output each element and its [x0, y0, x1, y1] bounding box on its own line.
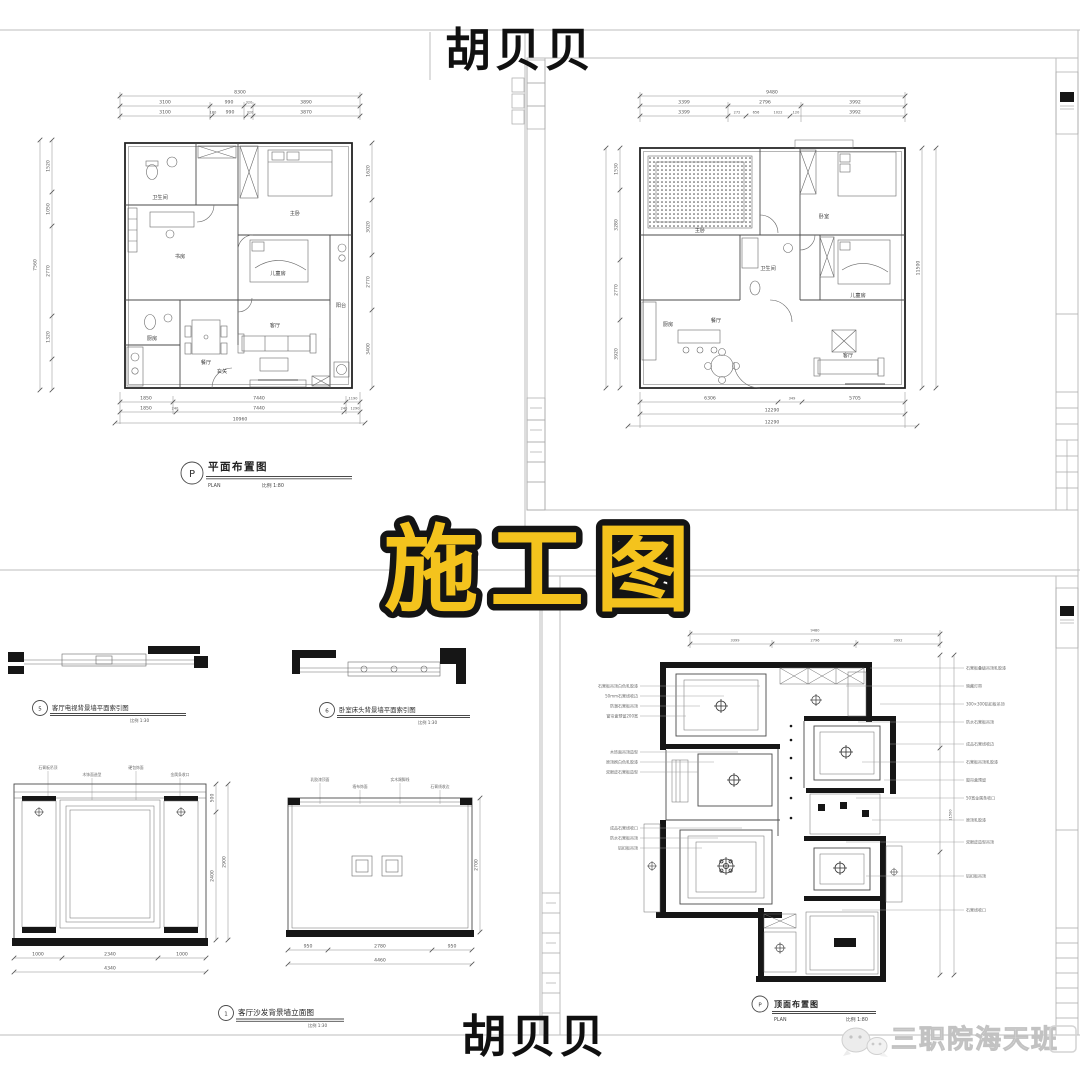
dim-label: 2400 [210, 870, 216, 882]
callout: 石膏板吊顶 [39, 765, 58, 770]
callout: 石膏板吊顶白色乳胶漆 [598, 683, 638, 689]
dim-label: 320 [247, 111, 254, 115]
index-caption-1: 5 客厅电视背景墙平面索引图 比例 1:30 [33, 701, 187, 725]
callout: 防水石膏板吊顶 [610, 835, 638, 841]
dim-label: 9480 [766, 90, 778, 96]
callout: 防潮石膏板吊顶 [610, 703, 638, 709]
dim-label: 1850 [140, 396, 152, 402]
index-scale: 比例 1:30 [418, 719, 437, 726]
callout: 双眼皮造型吊顶 [966, 839, 994, 845]
dim-label: 2700 [474, 859, 480, 871]
dim-label: 120 [793, 111, 800, 115]
author-name-top: 胡贝贝 [0, 26, 1060, 74]
dim-label: 1190 [349, 397, 358, 401]
dim-label: 4460 [374, 958, 386, 964]
dim-label: 1050 [46, 203, 52, 215]
plan1-title-block: P 平面布置图 PLAN 比例 1:80 [181, 460, 352, 489]
dim-label: 1850 [140, 406, 152, 412]
callout: 50mm石膏线收边 [605, 693, 638, 699]
room-label: 厨房 [147, 334, 157, 342]
dim-label: 656 [753, 111, 760, 115]
drawing-title: 平面布置图 [208, 460, 268, 473]
drawing-tag: P [758, 1003, 762, 1009]
callout: 50宽金属条收口 [966, 795, 995, 801]
ceiling-walls [656, 662, 896, 982]
index-title: 客厅电视背景墙平面索引图 [52, 703, 129, 712]
ceiling-chandelier-icon [717, 857, 735, 875]
ceiling-dims: 9480 3399 2796 3992 11500 [688, 629, 957, 978]
callout: 木饰面造型 [83, 772, 102, 777]
dim-label: 3399 [678, 100, 690, 106]
dim-label: 4340 [104, 966, 116, 972]
index-tag: 6 [325, 709, 329, 715]
ceiling-lamp-icon [727, 773, 741, 787]
right-elevation-callouts: 乳胶漆顶面 墙布饰面 实木踢脚线 石膏线收边 [311, 777, 450, 804]
callout: 墙布饰面 [352, 784, 367, 789]
left-elevation-callouts: 石膏板吊顶 木饰面造型 硬包饰面 金属条收口 [39, 765, 190, 800]
callout: 300×300铝扣板吊顶 [966, 701, 1005, 707]
dim-label: 3399 [678, 110, 690, 116]
drawing-tag: P [189, 469, 195, 480]
dim-label: 7440 [253, 406, 265, 412]
callout: 石膏线收口 [966, 907, 986, 913]
dim-label: 2796 [759, 100, 771, 106]
index-title: 卧室床头背景墙平面索引图 [339, 705, 416, 714]
main-title: 施工图 [323, 508, 763, 626]
ceiling-lamp-icon [839, 745, 853, 759]
index-diagram-tv-wall [8, 646, 208, 674]
dim-label: 180 [210, 111, 217, 115]
dim-label: 349 [789, 397, 796, 401]
room-label: 餐厅 [711, 316, 721, 324]
dim-label: 2780 [374, 944, 386, 950]
dim-label: 1290 [351, 407, 360, 411]
panel-plan-top-left: 卫生间 主卧 书房 儿童房 餐厅 厨房 客厅 阳台 玄关 8300 3100 9… [33, 90, 375, 490]
callout: 防水石膏板吊顶 [966, 719, 994, 725]
callout: 石膏板叠级吊顶乳胶漆 [966, 665, 1006, 671]
dim-label: 1000 [32, 952, 44, 958]
dim-label: 10960 [233, 417, 248, 423]
index-scale: 比例 1:30 [130, 717, 149, 724]
author-name-bottom: 胡贝贝 [0, 1013, 1075, 1060]
panel-plan-top-right: 主卧 卧室 儿童房 卫生间 厨房 餐厅 客厅 9480 3399 2796 39… [604, 90, 939, 429]
room-label: 厨房 [663, 320, 673, 328]
callout: 原顶刷白色乳胶漆 [606, 759, 638, 765]
dim-label: 240 [172, 407, 179, 411]
room-label: 玄关 [217, 367, 227, 375]
dim-label: 6306 [704, 396, 716, 402]
dim-label: 2340 [104, 952, 116, 958]
callout: 成品石膏线收边 [966, 741, 994, 747]
callout: 铝扣板吊顶 [966, 873, 986, 879]
dim-label: 950 [304, 944, 313, 950]
dim-label: 3100 [159, 110, 171, 116]
dim-label: 990 [226, 110, 235, 116]
callout: 窗帘盒预留 [966, 777, 986, 783]
construction-drawing-poster: 卫生间 主卧 书房 儿童房 餐厅 厨房 客厅 阳台 玄关 8300 3100 9… [0, 0, 1080, 1080]
ceiling-features [644, 668, 902, 974]
ceiling-lamp-icon [774, 942, 785, 953]
callout: 实木踢脚线 [391, 777, 410, 782]
panel-ceiling-plan: 9480 3399 2796 3992 11500 [598, 629, 1006, 1024]
dim-label: 3992 [849, 100, 861, 106]
dim-label: 7560 [33, 259, 39, 271]
room-label: 卫生间 [152, 193, 168, 201]
dim-label: 3399 [731, 639, 740, 643]
ceiling-lamp-icon [714, 699, 728, 713]
ceiling-lamp-icon [647, 861, 657, 871]
dim-label: 8300 [234, 90, 246, 96]
dim-label: 2900 [222, 856, 228, 868]
callout: 暗藏灯带 [966, 683, 982, 689]
dim-label: 500 [210, 794, 216, 803]
wall-lamp-icon [34, 807, 44, 817]
callout: 硬包饰面 [128, 765, 143, 770]
dim-label: 3100 [159, 100, 171, 106]
panel-elevations: 5 客厅电视背景墙平面索引图 比例 1:30 6 卧室床头背景墙平面索引图 比例… [8, 646, 482, 1029]
dim-label: 3280 [614, 219, 620, 231]
callout: 铝扣板吊顶 [618, 845, 638, 851]
dim-label: 950 [448, 944, 457, 950]
dim-label: 3400 [366, 343, 372, 355]
dim-label: 1620 [366, 165, 372, 177]
ceiling-lamp-icon [810, 694, 822, 706]
dim-label: 1320 [46, 331, 52, 343]
index-diagram-bed-wall [292, 648, 466, 684]
dim-label: 3870 [300, 110, 312, 116]
dim-label: 990 [225, 100, 234, 106]
ceiling-callouts-left: 石膏板吊顶白色乳胶漆 50mm石膏线收边 防潮石膏板吊顶 窗帘盒预留200宽 木… [598, 683, 760, 851]
dim-label: 1000 [176, 952, 188, 958]
sofa-wall-elevation: 950 2780 950 4460 2700 [286, 796, 483, 967]
dim-label: 320 [246, 101, 253, 105]
room-label: 卫生间 [760, 264, 776, 272]
room-label: 主卧 [695, 226, 705, 234]
dim-label: 3992 [894, 639, 903, 643]
callout: 金属条收口 [171, 772, 190, 777]
dim-label: 9480 [811, 629, 820, 633]
drawing-scale: 比例 1:80 [262, 482, 284, 489]
dim-label: 2770 [46, 265, 52, 277]
dim-label: 1530 [614, 163, 620, 175]
dim-label: 7440 [253, 396, 265, 402]
room-label: 客厅 [843, 351, 853, 359]
ceiling-lamp-icon [833, 861, 847, 875]
plan2-dims: 9480 3399 2796 3992 3399 272 656 1022 12… [604, 90, 939, 429]
tv-wall-elevation: 1000 2340 1000 4340 500 2400 2900 [12, 782, 231, 975]
index-caption-2: 6 卧室床头背景墙平面索引图 比例 1:30 [320, 703, 471, 727]
callout: 乳胶漆顶面 [311, 777, 330, 782]
callout: 双眼皮石膏板造型 [606, 769, 638, 775]
room-label: 客厅 [270, 321, 280, 329]
room-label: 餐厅 [201, 358, 211, 366]
dim-label: 2770 [366, 276, 372, 288]
dim-label: 3920 [614, 348, 620, 360]
callout: 窗帘盒预留200宽 [606, 713, 638, 719]
dim-label: 12290 [765, 408, 780, 414]
dim-label: 3890 [300, 100, 312, 106]
dim-label: 2796 [811, 639, 820, 643]
room-label: 儿童房 [850, 291, 866, 299]
callout: 成品石膏线收口 [610, 825, 638, 831]
callout: 木饰面吊顶造型 [610, 749, 638, 755]
dim-label: 1022 [774, 111, 783, 115]
dim-label: 3020 [366, 221, 372, 233]
ceiling-lamp-icon [890, 868, 898, 876]
dim-label: 2770 [614, 284, 620, 296]
plan1-dims: 8300 3100 990 320 3890 3100 180 990 320 … [33, 90, 375, 426]
dim-label: 11500 [949, 809, 953, 820]
dim-label: 11500 [916, 261, 922, 276]
callout: 原顶乳胶漆 [966, 817, 986, 823]
dim-label: 3992 [849, 110, 861, 116]
drawing-subtitle: PLAN [208, 483, 221, 489]
dim-label: 12290 [765, 420, 780, 426]
main-title-text: 施工图 [384, 516, 702, 625]
room-label: 主卧 [290, 209, 300, 217]
dim-label: 272 [734, 111, 741, 115]
drawing-title: 顶面布置图 [774, 999, 819, 1009]
room-label: 卧室 [819, 212, 829, 220]
index-tag: 5 [38, 707, 42, 713]
wall-lamp-icon [176, 807, 186, 817]
dim-label: 5705 [849, 396, 861, 402]
room-label: 阳台 [336, 301, 346, 309]
callout: 石膏线收边 [431, 784, 450, 789]
room-label: 儿童房 [270, 269, 286, 277]
dim-label: 240 [341, 407, 348, 411]
callout: 石膏板吊顶乳胶漆 [966, 759, 998, 765]
room-label: 书房 [175, 252, 185, 260]
dim-label: 1520 [46, 160, 52, 172]
